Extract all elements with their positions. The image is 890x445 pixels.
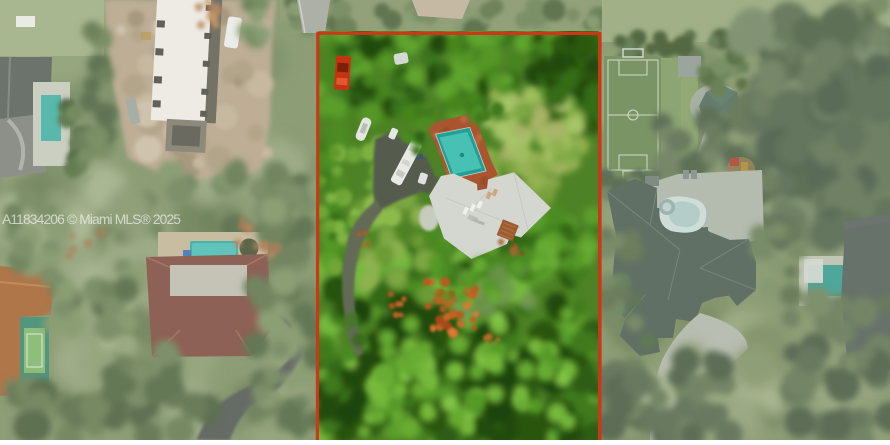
svg-text:A11834206 © Miami MLS® 2025: A11834206 © Miami MLS® 2025 xyxy=(2,212,181,227)
